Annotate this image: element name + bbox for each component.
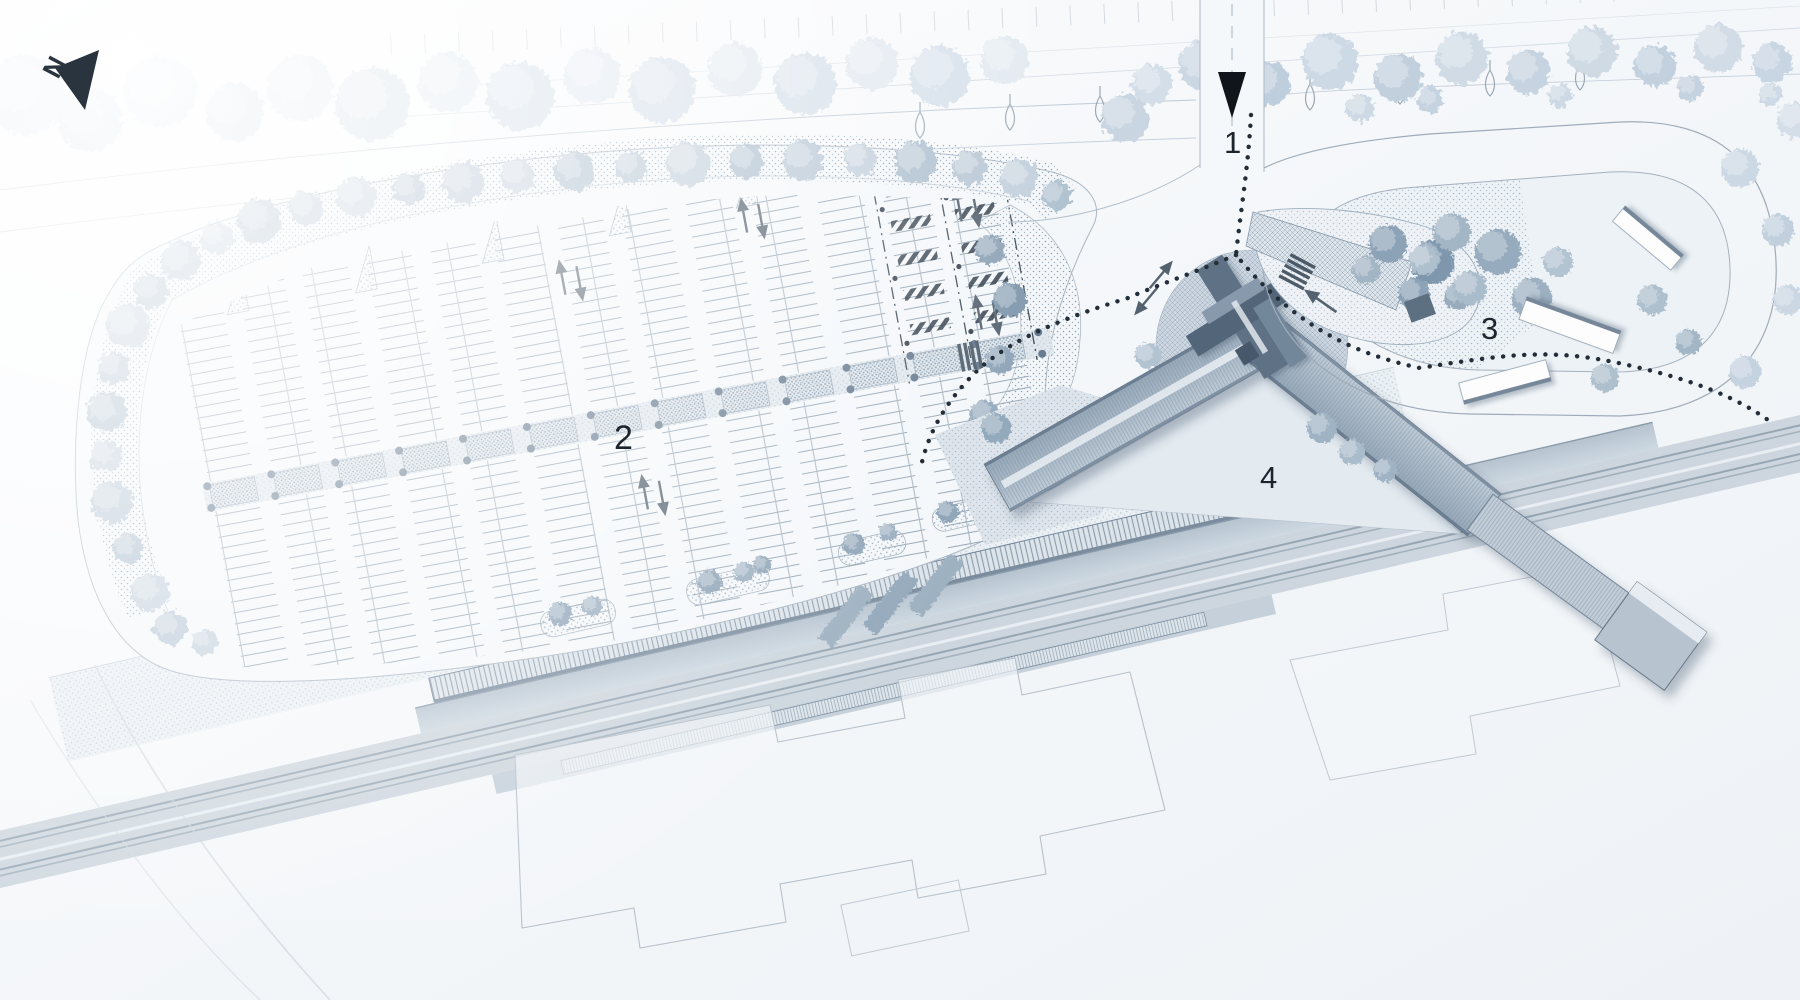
marker-label-2: 2 bbox=[614, 419, 633, 457]
marker-label-4: 4 bbox=[1260, 460, 1277, 495]
site-plan-page: N 1 2 3 4 bbox=[0, 0, 1800, 1000]
marker-label-1: 1 bbox=[1224, 125, 1241, 160]
marker-2-parking: 2 bbox=[614, 419, 633, 457]
marker-label-3: 3 bbox=[1481, 311, 1498, 346]
site-plan-drawing: N 1 2 3 4 bbox=[0, 0, 1800, 1000]
marker-4-station-building: 4 bbox=[1260, 460, 1277, 495]
marker-3-bus-loop: 3 bbox=[1481, 311, 1498, 346]
